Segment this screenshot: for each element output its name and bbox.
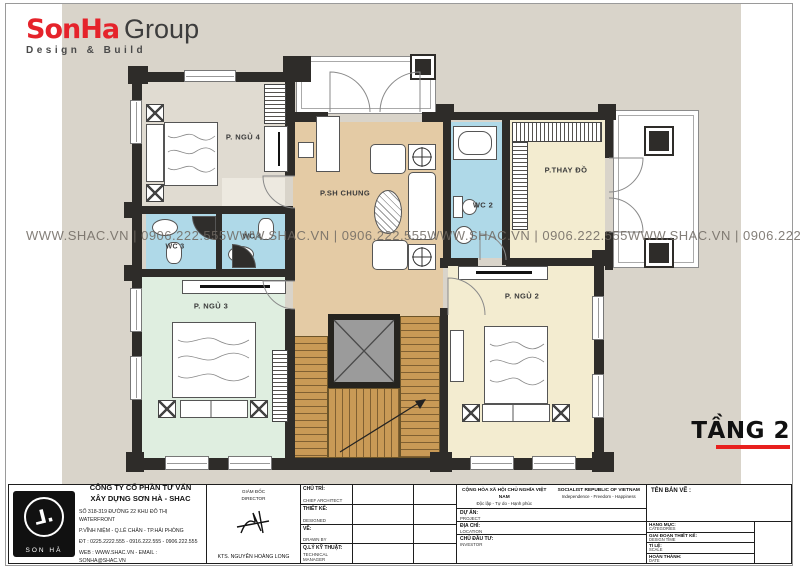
- drawing-section: TÊN BẢN VẼ : HẠNG MỤC:CATEGORIES GIAI ĐO…: [647, 485, 791, 563]
- national-section: CỘNG HÒA XÃ HỘI CHỦ NGHĨA VIỆT NAM Độc l…: [457, 485, 647, 563]
- tv: [200, 285, 270, 288]
- investor-label-en: INVESTOR: [460, 542, 643, 547]
- watermark-row: WWW.SHAC.VN | 0906.222.555 WWW.SHAC.VN |…: [0, 228, 800, 243]
- column: [430, 452, 452, 472]
- wall: [440, 308, 448, 470]
- bed: [164, 122, 218, 186]
- role-value-cell: [353, 505, 414, 524]
- bed: [172, 322, 256, 398]
- desk: [450, 330, 464, 382]
- company-address-line1: SỐ 318-319 ĐƯỜNG 22 KHU ĐÔ THỊ WATERFRON…: [79, 508, 202, 524]
- motto-en-2: Independence - Freedom - Happiness: [552, 494, 647, 499]
- elevator-shaft: [328, 314, 400, 388]
- wall: [506, 258, 604, 266]
- role-label-vi: THIẾT KẾ:: [303, 506, 350, 512]
- wardrobe: [512, 142, 528, 230]
- watermark: WWW.SHAC.VN | 0906.222.555: [427, 228, 628, 243]
- room-label-bedroom4: P. NGỦ 4: [226, 133, 260, 142]
- nightstand: [146, 184, 164, 202]
- role-label-en: CHIEF ARCHITECT: [303, 498, 350, 503]
- motto-vi-2: Độc lập - Tự do - Hạnh phúc: [457, 501, 552, 506]
- role-extra-cell: [414, 544, 456, 563]
- roles-section: CHỦ TRÌ:CHIEF ARCHITECT THIẾT KẾ:DESIGNE…: [301, 485, 457, 563]
- investor-row: CHỦ ĐẦU TƯ: INVESTOR: [457, 535, 646, 563]
- nightstand: [158, 400, 176, 418]
- drawing-number-cell: [755, 522, 791, 563]
- column: [128, 66, 148, 84]
- role-label-en: DRAWN BY: [303, 537, 350, 542]
- room-label-bedroom2: P. NGỦ 2: [505, 292, 539, 301]
- company-name-line2: XÂY DỰNG SƠN HÀ - SHAC: [79, 494, 202, 505]
- side-table: [298, 142, 314, 158]
- company-logo-mark: ⅃.: [32, 504, 56, 530]
- role-label-vi: VẼ:: [303, 526, 350, 532]
- location-label-en: LOCATION: [460, 529, 643, 534]
- company-phone: ĐT : 0225.2222.555 - 0916.222.555 - 0906…: [79, 538, 202, 546]
- drawing-row: TỈ LỆ:SCALE: [647, 543, 754, 554]
- window: [532, 456, 576, 470]
- role-value-cell: [353, 525, 414, 544]
- column: [124, 202, 136, 218]
- bathtub-basin: [458, 131, 492, 155]
- company-logo: ⅃. SON HÀ: [13, 491, 75, 557]
- director-name: KTS. NGUYỄN HOÀNG LONG: [218, 554, 290, 560]
- floor-tag: TẦNG 2: [688, 418, 790, 449]
- drawing-row: HẠNG MỤC:CATEGORIES: [647, 522, 754, 533]
- brand-logo-red: SonHa: [26, 16, 119, 43]
- stair-flight: [400, 316, 440, 458]
- company-section: ⅃. SON HÀ CÔNG TY CỔ PHẦN TƯ VẤN XÂY DỰN…: [9, 485, 207, 563]
- window: [165, 456, 209, 470]
- rack: [272, 350, 288, 422]
- wall: [285, 208, 295, 281]
- wall: [502, 120, 510, 265]
- company-address-line2: P.VĨNH NIỆM - Q.LÊ CHÂN - TP.HẢI PHÒNG: [79, 527, 202, 535]
- motto-vi-1: CỘNG HÒA XÃ HỘI CHỦ NGHĨA VIỆT NAM: [457, 487, 552, 501]
- role-extra-cell: [414, 485, 456, 504]
- brand-logo: SonHa Group Design & Build: [26, 16, 199, 56]
- project-row: DỰ ÁN: PROJECT: [457, 509, 646, 522]
- floor-tag-label: TẦNG 2: [688, 418, 790, 444]
- wall: [594, 258, 604, 470]
- wardrobe: [264, 84, 286, 124]
- room-label-dressing: P.THAY ĐỒ: [545, 166, 588, 175]
- drawing-row: GIAI ĐOẠN THIẾT KẾ:DESIGN TIME: [647, 533, 754, 544]
- window: [130, 356, 142, 400]
- watermark: WWW.SHAC.VN | 0906.222.555: [628, 228, 800, 243]
- wall: [443, 112, 613, 120]
- column: [598, 104, 616, 120]
- nightstand: [552, 404, 570, 422]
- balcony-column: [644, 126, 674, 156]
- armchair: [372, 240, 408, 270]
- director-title-en: DIRECTOR: [242, 495, 266, 502]
- role-row: VẼ:DRAWN BY: [301, 525, 456, 545]
- plant-table: [408, 244, 436, 270]
- bed-bench: [180, 400, 248, 418]
- column: [126, 452, 144, 472]
- window: [130, 288, 142, 332]
- stair-flight: [293, 336, 328, 458]
- drawing-row-en: DATE: [649, 559, 752, 564]
- column: [592, 250, 606, 266]
- company-logo-mark-circle: ⅃.: [24, 497, 64, 537]
- nightstand: [250, 400, 268, 418]
- drawing-row-en: CATEGORIES: [649, 527, 752, 532]
- director-section: GIÁM ĐỐC DIRECTOR KTS. NGUYỄN HOÀNG LONG: [207, 485, 301, 563]
- window: [184, 70, 236, 82]
- room-label-wc2: WC 2: [473, 201, 493, 210]
- column: [124, 265, 136, 281]
- terrace-column: [410, 54, 436, 80]
- drawing-name-label: TÊN BẢN VẼ :: [647, 485, 791, 521]
- column: [283, 56, 311, 82]
- drawing-row-en: SCALE: [649, 548, 752, 553]
- nightstand: [146, 104, 164, 122]
- watermark: WWW.SHAC.VN | 0906.222.555: [26, 228, 227, 243]
- column: [436, 104, 454, 120]
- role-row: THIẾT KẾ:DESIGNED: [301, 505, 456, 525]
- window: [592, 296, 604, 340]
- director-title-vi: GIÁM ĐỐC: [242, 488, 265, 495]
- role-extra-cell: [414, 525, 456, 544]
- watermark: WWW.SHAC.VN | 0906.222.555: [227, 228, 428, 243]
- role-label-en: DESIGNED: [303, 518, 350, 523]
- location-row: ĐỊA CHỈ: LOCATION: [457, 522, 646, 535]
- floor-plan-sheet: P. NGỦ 4 P.SH CHUNG P.THAY ĐỒ WC 2 WC 3 …: [0, 0, 800, 569]
- wall: [432, 458, 604, 470]
- window: [592, 374, 604, 418]
- headboard: [146, 124, 164, 182]
- window: [130, 100, 142, 144]
- stair-flight: [328, 388, 400, 458]
- wall: [440, 258, 448, 268]
- room-label-bedroom3: P. NGỦ 3: [194, 302, 228, 311]
- role-label-vi: CHỦ TRÌ:: [303, 486, 350, 492]
- company-logo-text: SON HÀ: [26, 547, 63, 554]
- drawing-row: HOÀN THÀNH:DATE: [647, 554, 754, 564]
- company-web: WEB : WWW.SHAC.VN - EMAIL : SONHA@SHAC.V…: [79, 549, 202, 565]
- window: [470, 456, 514, 470]
- director-signature: [229, 503, 279, 537]
- wardrobe: [512, 122, 602, 142]
- bed: [484, 326, 548, 404]
- role-value-cell: [353, 485, 414, 504]
- motto-en-1: SOCIALIST REPUBLIC OF VIETNAM: [552, 487, 647, 494]
- window: [228, 456, 272, 470]
- plant-table: [408, 144, 436, 170]
- role-extra-cell: [414, 505, 456, 524]
- cabinet-line: [278, 132, 280, 166]
- room-label-living: P.SH CHUNG: [320, 189, 370, 198]
- drawing-row-en: DESIGN TIME: [649, 538, 752, 543]
- tv: [476, 271, 532, 274]
- armchair: [370, 144, 406, 174]
- cabinet: [264, 126, 288, 172]
- tv-cabinet: [316, 116, 340, 172]
- project-label-en: PROJECT: [460, 516, 643, 521]
- hall-floor: [222, 178, 285, 206]
- title-block: ⅃. SON HÀ CÔNG TY CỔ PHẦN TƯ VẤN XÂY DỰN…: [8, 484, 792, 564]
- floor-tag-underline: [716, 445, 790, 449]
- brand-tagline: Design & Build: [26, 45, 199, 56]
- role-row: CHỦ TRÌ:CHIEF ARCHITECT: [301, 485, 456, 505]
- role-label-vi: Q.LÝ KỸ THUẬT:: [303, 545, 350, 551]
- room-label-wc3: WC 3: [165, 244, 184, 251]
- column: [592, 452, 614, 472]
- company-name-line1: CÔNG TY CỔ PHẦN TƯ VẤN: [79, 483, 202, 494]
- nightstand: [462, 404, 480, 422]
- role-value-cell: [353, 544, 414, 563]
- brand-logo-dark: Group: [124, 16, 199, 43]
- bed-bench: [482, 404, 550, 422]
- role-row: Q.LÝ KỸ THUẬT:TECHNICAL MANAGER: [301, 544, 456, 563]
- role-label-en: TECHNICAL MANAGER: [303, 552, 350, 562]
